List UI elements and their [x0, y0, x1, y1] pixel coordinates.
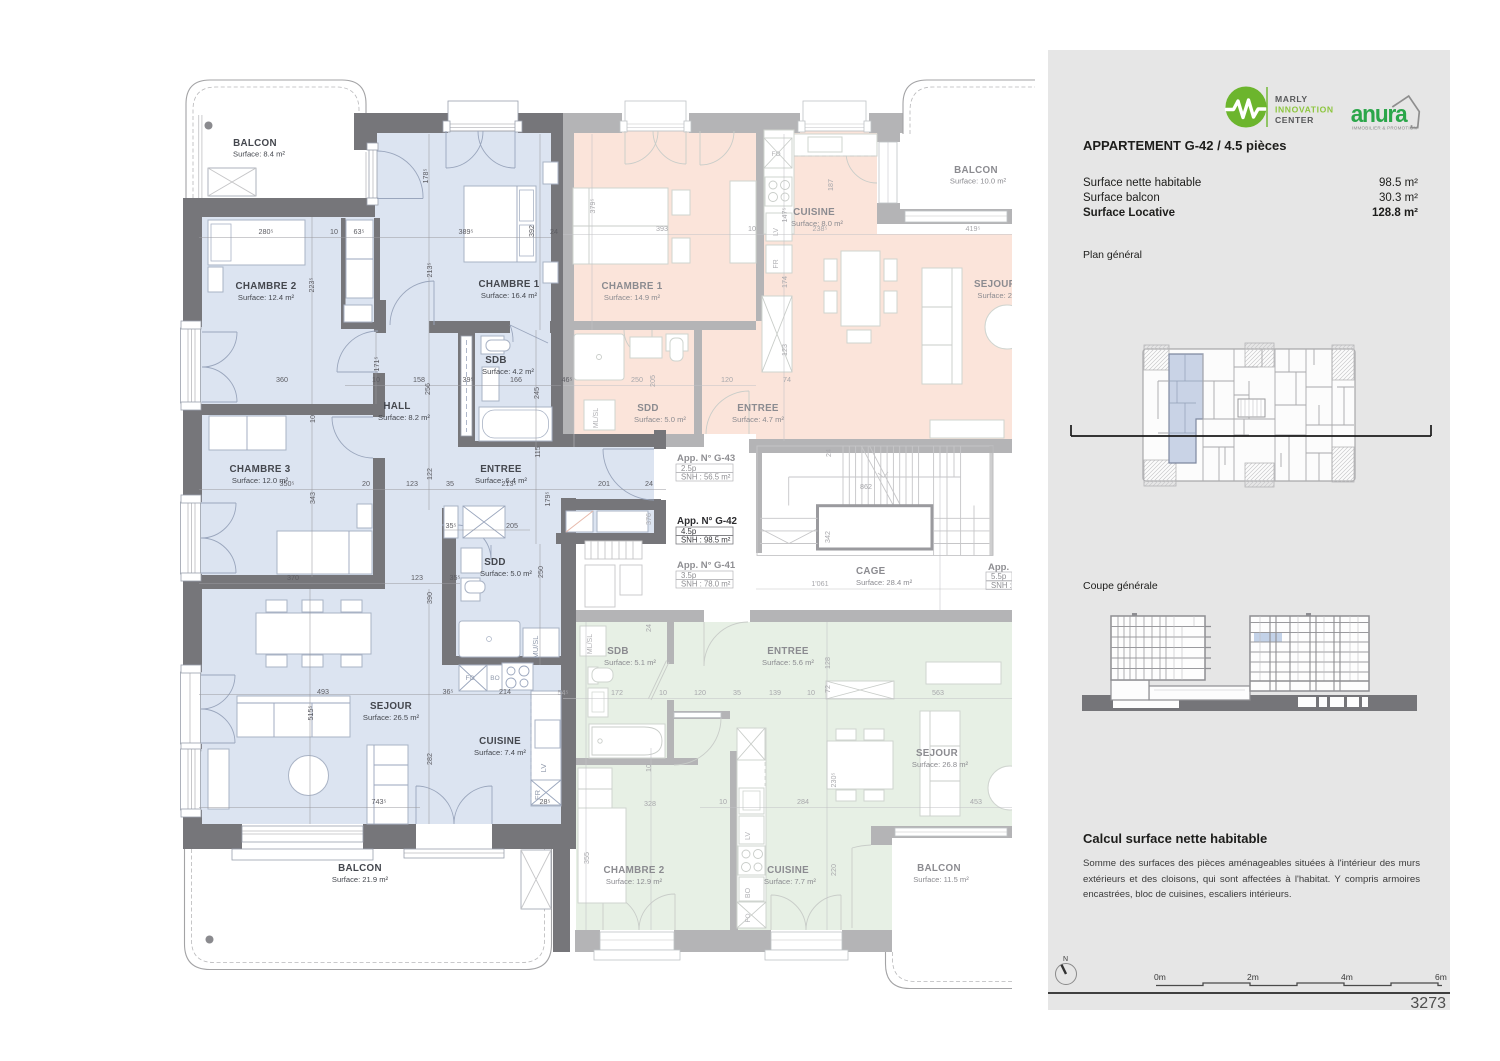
svg-text:123: 123 [780, 344, 789, 356]
svg-text:282: 282 [425, 753, 434, 765]
svg-text:120: 120 [721, 375, 733, 384]
svg-text:CHAMBRE 1: CHAMBRE 1 [602, 281, 663, 292]
svg-text:178⁵: 178⁵ [421, 169, 430, 184]
svg-text:LV: LV [539, 764, 548, 773]
svg-text:393: 393 [656, 224, 668, 233]
svg-text:36⁵: 36⁵ [443, 687, 454, 696]
svg-text:1'061: 1'061 [811, 579, 828, 588]
svg-text:128: 128 [823, 657, 832, 669]
svg-text:App. N° G-42: App. N° G-42 [677, 516, 738, 527]
svg-text:Surface: 12.9 m²: Surface: 12.9 m² [606, 877, 663, 886]
svg-text:223⁵: 223⁵ [307, 278, 316, 293]
svg-text:743⁵: 743⁵ [372, 797, 387, 806]
svg-text:493: 493 [317, 687, 329, 696]
svg-text:35⁵: 35⁵ [450, 573, 461, 582]
svg-text:166: 166 [510, 375, 522, 384]
svg-text:SEJOUR: SEJOUR [916, 748, 958, 759]
svg-text:FR: FR [773, 259, 780, 268]
svg-text:174: 174 [780, 276, 789, 288]
svg-text:MU/SL: MU/SL [531, 636, 540, 659]
svg-text:35⁵: 35⁵ [446, 521, 457, 530]
svg-text:Surface: 5.1 m²: Surface: 5.1 m² [604, 658, 656, 667]
svg-text:ENTREE: ENTREE [480, 464, 522, 475]
svg-text:122: 122 [425, 468, 434, 480]
svg-text:CHAMBRE 2: CHAMBRE 2 [236, 281, 297, 292]
svg-text:862: 862 [860, 482, 872, 491]
svg-text:Surface: 12.0 m²: Surface: 12.0 m² [232, 476, 289, 485]
svg-text:Surface: 5.6 m²: Surface: 5.6 m² [762, 658, 814, 667]
svg-text:Surface: 10.0 m²: Surface: 10.0 m² [950, 177, 1007, 186]
svg-text:10: 10 [330, 227, 338, 236]
svg-text:35: 35 [446, 479, 454, 488]
svg-text:46⁵: 46⁵ [562, 375, 573, 384]
svg-text:147⁵: 147⁵ [780, 208, 789, 223]
svg-text:CENTER: CENTER [1275, 115, 1314, 125]
svg-text:CUISINE: CUISINE [479, 736, 521, 747]
svg-text:SDD: SDD [484, 557, 506, 568]
svg-text:20: 20 [362, 479, 370, 488]
svg-text:SNH : 78.0 m²: SNH : 78.0 m² [681, 580, 731, 589]
svg-text:115: 115 [533, 446, 542, 457]
svg-text:24: 24 [645, 479, 653, 488]
svg-text:123: 123 [411, 573, 423, 582]
svg-text:10: 10 [372, 375, 380, 384]
svg-text:BALCON: BALCON [338, 863, 382, 874]
svg-text:392: 392 [527, 225, 536, 237]
svg-text:256: 256 [423, 383, 432, 395]
svg-text:10: 10 [719, 797, 727, 806]
svg-text:Surface: 5.0 m²: Surface: 5.0 m² [480, 569, 532, 578]
svg-text:328: 328 [644, 799, 656, 808]
svg-text:MARLY: MARLY [1275, 94, 1308, 104]
svg-text:213⁵: 213⁵ [425, 263, 434, 278]
svg-text:ML/SL: ML/SL [587, 634, 594, 654]
svg-text:Surface: 5.0 m²: Surface: 5.0 m² [634, 415, 686, 424]
svg-text:N: N [1063, 956, 1068, 963]
svg-text:BO: BO [490, 675, 499, 682]
svg-text:CHAMBRE 1: CHAMBRE 1 [479, 279, 540, 290]
svg-text:24: 24 [644, 624, 653, 632]
svg-text:0m: 0m [1154, 972, 1166, 982]
svg-text:Surface: 7.7 m²: Surface: 7.7 m² [764, 877, 816, 886]
svg-text:376: 376 [644, 513, 653, 525]
svg-text:35: 35 [733, 688, 741, 697]
svg-text:FO: FO [745, 913, 752, 922]
svg-text:171⁵: 171⁵ [372, 357, 381, 372]
svg-text:SEJOUR: SEJOUR [974, 279, 1016, 290]
svg-text:IMMOBILIER & PROMOTION: IMMOBILIER & PROMOTION [1352, 126, 1417, 131]
svg-text:Surface: 11.5 m²: Surface: 11.5 m² [913, 875, 969, 884]
svg-text:389⁵: 389⁵ [459, 227, 474, 236]
svg-text:10: 10 [644, 764, 653, 772]
svg-text:63⁵: 63⁵ [354, 227, 365, 236]
svg-text:SNH :: SNH : [991, 581, 1012, 590]
svg-text:250: 250 [536, 566, 545, 578]
svg-text:CUISINE: CUISINE [793, 207, 835, 218]
svg-text:220: 220 [829, 864, 838, 876]
svg-text:39⁵: 39⁵ [463, 375, 474, 384]
svg-text:Surface: 4.7 m²: Surface: 4.7 m² [732, 415, 784, 424]
svg-text:179⁵: 179⁵ [543, 492, 552, 507]
svg-text:Surface: 12.4 m²: Surface: 12.4 m² [238, 293, 295, 302]
svg-text:SEJOUR: SEJOUR [370, 701, 412, 712]
svg-text:120: 120 [694, 688, 706, 697]
svg-text:214: 214 [499, 687, 511, 696]
svg-text:284: 284 [797, 797, 809, 806]
svg-text:Surface: 14.9 m²: Surface: 14.9 m² [604, 293, 661, 302]
svg-text:342: 342 [823, 531, 832, 543]
svg-text:343: 343 [308, 492, 317, 504]
svg-text:515⁵: 515⁵ [306, 706, 315, 721]
svg-text:10: 10 [659, 688, 667, 697]
svg-text:Surface: 28.4 m²: Surface: 28.4 m² [856, 578, 913, 587]
svg-text:360: 360 [276, 375, 288, 384]
svg-text:563: 563 [932, 688, 944, 697]
svg-text:SNH : 98.5 m²: SNH : 98.5 m² [681, 536, 731, 545]
svg-text:24: 24 [824, 449, 833, 457]
svg-text:BALCON: BALCON [233, 138, 277, 149]
svg-text:172: 172 [611, 688, 623, 697]
svg-text:390: 390 [425, 592, 434, 604]
svg-text:ML/SL: ML/SL [593, 408, 600, 428]
svg-text:72: 72 [823, 685, 832, 693]
svg-text:Surface: 7.4 m²: Surface: 7.4 m² [474, 748, 526, 757]
svg-text:SDB: SDB [485, 355, 507, 366]
svg-text:anura: anura [1351, 100, 1409, 127]
svg-text:10: 10 [748, 224, 756, 233]
svg-text:419⁵: 419⁵ [966, 224, 981, 233]
svg-text:24: 24 [550, 227, 558, 236]
svg-text:SNH : 56.5 m²: SNH : 56.5 m² [681, 473, 731, 482]
svg-text:355: 355 [582, 852, 591, 864]
svg-text:Surface: 8.0 m²: Surface: 8.0 m² [791, 219, 843, 228]
svg-text:4m: 4m [1341, 972, 1353, 982]
svg-text:205: 205 [648, 375, 657, 387]
svg-text:CHAMBRE 2: CHAMBRE 2 [604, 865, 665, 876]
svg-text:INNOVATION: INNOVATION [1275, 105, 1334, 115]
svg-text:Surface: 8.4 m²: Surface: 8.4 m² [233, 150, 285, 159]
svg-text:Surface: 21.9 m²: Surface: 21.9 m² [332, 875, 389, 884]
svg-text:453: 453 [970, 797, 982, 806]
svg-text:BO: BO [745, 887, 752, 898]
svg-text:123: 123 [406, 479, 418, 488]
svg-text:App. N° G-43: App. N° G-43 [677, 453, 735, 464]
svg-text:54⁵: 54⁵ [558, 688, 569, 697]
svg-text:74: 74 [783, 375, 791, 384]
svg-text:Surface: 26.5 m²: Surface: 26.5 m² [363, 713, 420, 722]
svg-text:250: 250 [631, 375, 643, 384]
svg-text:245: 245 [532, 387, 541, 399]
svg-text:370: 370 [287, 573, 299, 582]
svg-text:FO: FO [771, 151, 780, 158]
svg-text:2m: 2m [1247, 972, 1259, 982]
svg-text:Surface: 16.4 m²: Surface: 16.4 m² [481, 291, 538, 300]
svg-text:379⁵: 379⁵ [588, 199, 597, 214]
svg-text:201: 201 [598, 479, 610, 488]
svg-text:CHAMBRE 3: CHAMBRE 3 [230, 464, 291, 475]
svg-text:CAGE: CAGE [856, 566, 886, 577]
svg-text:280⁵: 280⁵ [259, 227, 274, 236]
svg-text:HALL: HALL [383, 401, 410, 412]
svg-text:230⁵: 230⁵ [829, 773, 838, 788]
svg-text:CUISINE: CUISINE [767, 865, 809, 876]
svg-text:BALCON: BALCON [917, 863, 961, 874]
svg-text:ENTREE: ENTREE [767, 646, 809, 657]
svg-text:Surface: 6.4 m²: Surface: 6.4 m² [475, 476, 527, 485]
svg-text:Surface: 8.2 m²: Surface: 8.2 m² [378, 413, 430, 422]
svg-text:LV: LV [745, 832, 752, 840]
svg-text:ENTREE: ENTREE [737, 403, 779, 414]
svg-text:5.5p: 5.5p [991, 572, 1007, 581]
svg-text:205: 205 [506, 521, 518, 530]
svg-text:6m: 6m [1435, 972, 1447, 982]
svg-text:BALCON: BALCON [954, 165, 998, 176]
svg-text:SDB: SDB [607, 646, 629, 657]
svg-text:187: 187 [826, 179, 835, 191]
svg-text:FO: FO [465, 675, 474, 682]
svg-text:Surface: 26.8 m²: Surface: 26.8 m² [912, 760, 969, 769]
svg-text:SDD: SDD [637, 403, 659, 414]
svg-text:10: 10 [308, 415, 317, 423]
svg-text:158: 158 [413, 375, 425, 384]
svg-text:10: 10 [807, 688, 815, 697]
svg-text:App. N° G-41: App. N° G-41 [677, 560, 736, 571]
svg-text:Surface: 4.2 m²: Surface: 4.2 m² [482, 367, 534, 376]
svg-text:139: 139 [769, 688, 781, 697]
svg-text:28⁵: 28⁵ [540, 797, 551, 806]
